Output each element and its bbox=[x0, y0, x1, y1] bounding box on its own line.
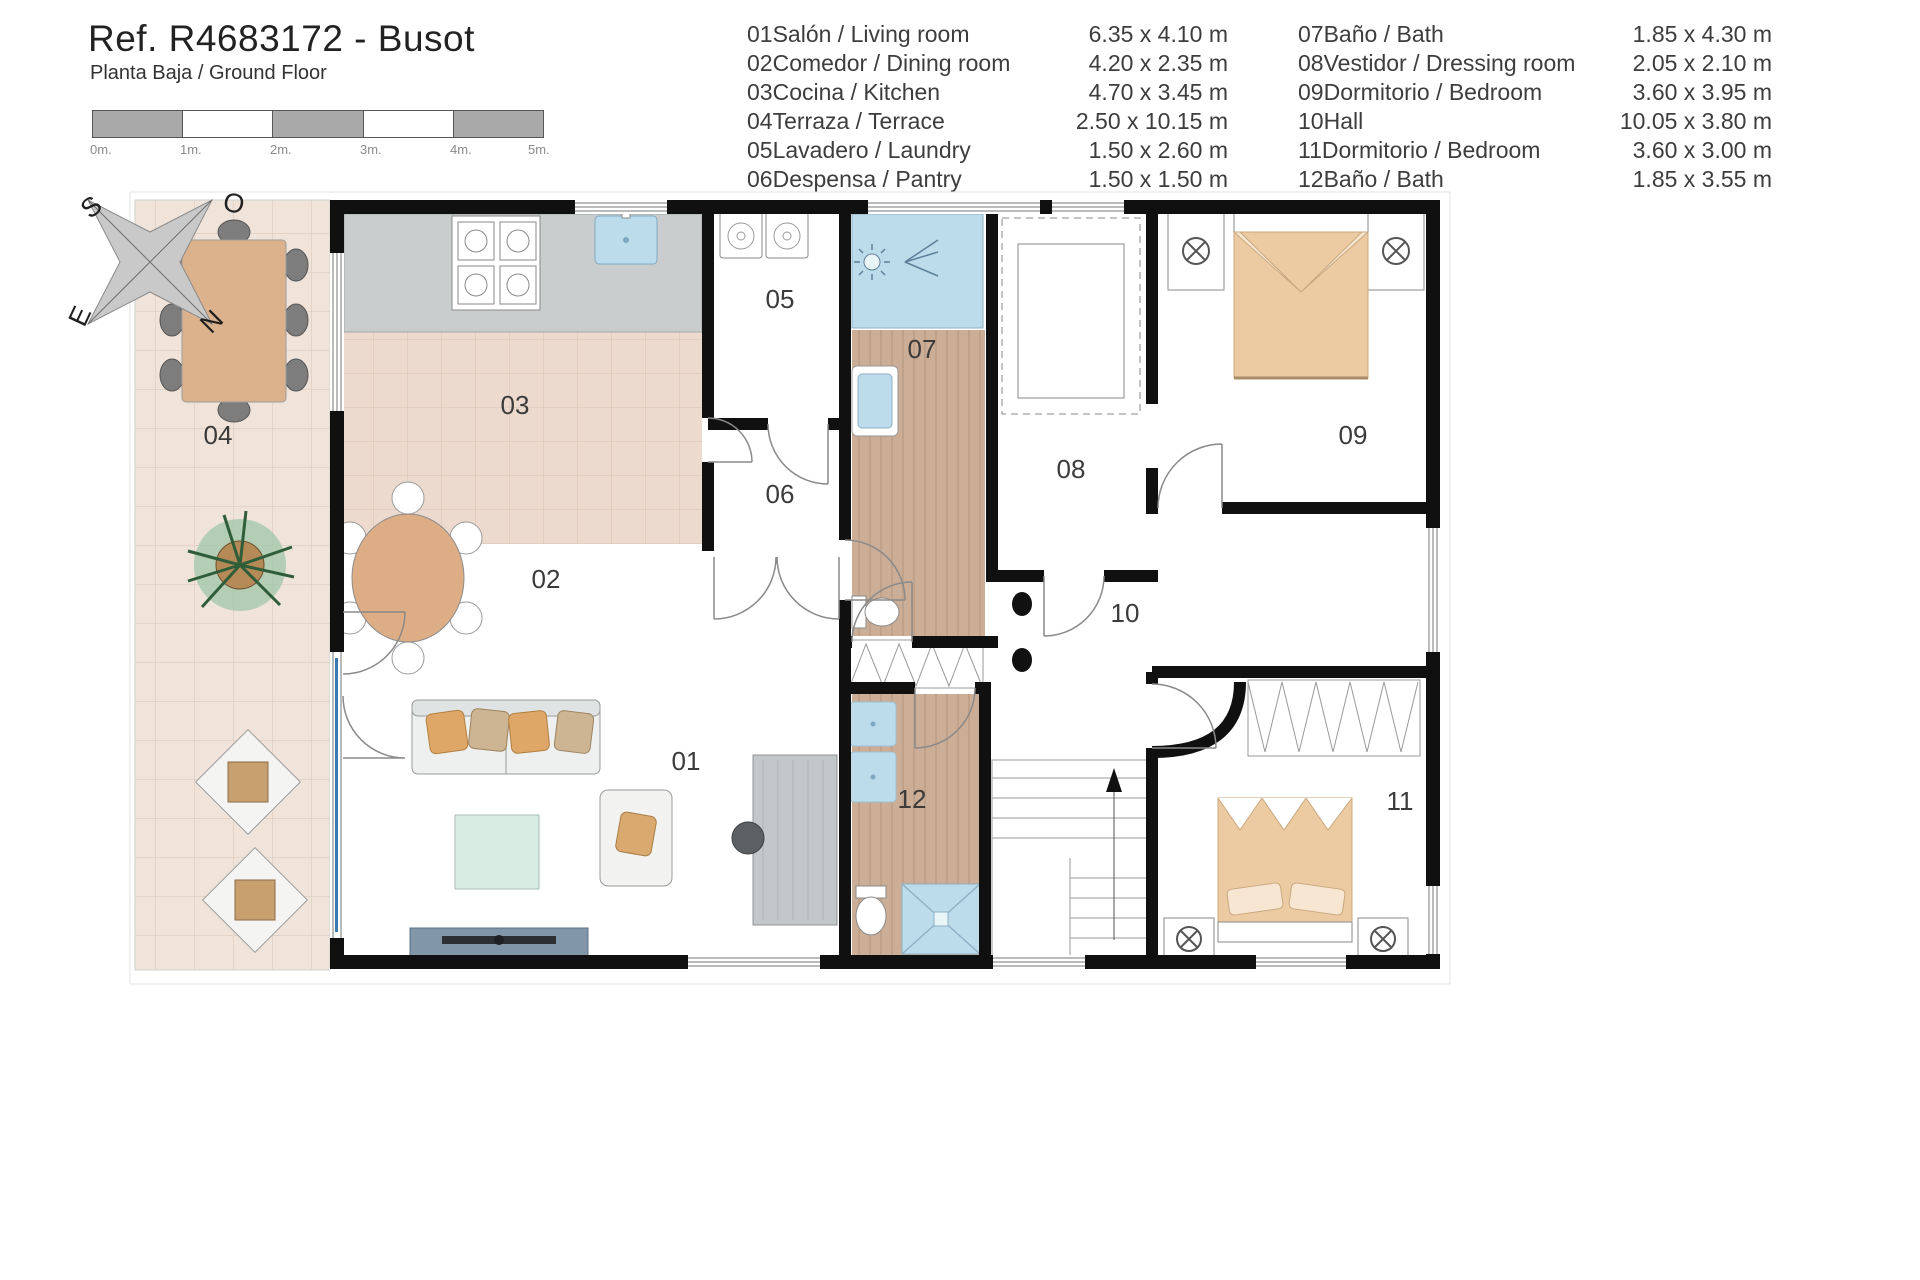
bath-sink-icon bbox=[850, 702, 896, 802]
sliding-glass-door bbox=[330, 652, 344, 938]
window bbox=[1426, 886, 1440, 954]
window bbox=[868, 200, 1040, 214]
floorplan-drawing: S O E N 01 02 03 04 05 06 07 08 09 10 11… bbox=[0, 0, 1920, 1280]
sofa-icon bbox=[412, 700, 600, 774]
compass-letter-east: E bbox=[62, 302, 97, 331]
room-label-03: 03 bbox=[501, 390, 530, 420]
window bbox=[330, 253, 344, 411]
window bbox=[1256, 955, 1346, 969]
bath-sink-icon bbox=[852, 366, 898, 436]
room-label-07: 07 bbox=[908, 334, 937, 364]
room-label-02: 02 bbox=[532, 564, 561, 594]
room-label-04: 04 bbox=[204, 420, 233, 450]
stairs bbox=[992, 760, 1148, 958]
closet-hangers-icon bbox=[1248, 680, 1420, 756]
window bbox=[993, 955, 1085, 969]
room-label-08: 08 bbox=[1057, 454, 1086, 484]
shower-icon bbox=[852, 214, 983, 328]
nightstand-lamp-icon bbox=[1164, 918, 1214, 960]
room-label-11: 11 bbox=[1387, 786, 1414, 816]
double-bed-icon bbox=[1218, 798, 1352, 942]
room-label-05: 05 bbox=[766, 284, 795, 314]
room-08-wardrobe-icon bbox=[1002, 218, 1140, 414]
room-label-12: 12 bbox=[898, 784, 927, 814]
column bbox=[1012, 648, 1032, 672]
column bbox=[1012, 592, 1032, 616]
room-label-09: 09 bbox=[1339, 420, 1368, 450]
nightstand-lamp-icon bbox=[1168, 212, 1224, 290]
window bbox=[575, 200, 667, 214]
hob-icon bbox=[452, 216, 540, 310]
shower-icon bbox=[902, 884, 980, 954]
washer-icon bbox=[766, 212, 808, 258]
room-label-01: 01 bbox=[672, 746, 701, 776]
armchair-icon bbox=[600, 790, 672, 886]
double-bed-icon bbox=[1234, 210, 1368, 378]
nightstand-lamp-icon bbox=[1368, 212, 1424, 290]
nightstand-lamp-icon bbox=[1358, 918, 1408, 960]
floorplan-page: Ref. R4683172 - Busot Planta Baja / Grou… bbox=[0, 0, 1920, 1280]
kitchen-sink-icon bbox=[595, 210, 657, 264]
window bbox=[688, 955, 820, 969]
tv-sideboard-icon bbox=[410, 928, 588, 958]
window bbox=[1426, 528, 1440, 652]
room-label-06: 06 bbox=[766, 479, 795, 509]
washer-icon bbox=[720, 212, 762, 258]
toilet-icon bbox=[856, 886, 886, 935]
room-label-10: 10 bbox=[1111, 598, 1140, 628]
coffee-table-icon bbox=[455, 815, 539, 889]
window bbox=[1052, 200, 1124, 214]
